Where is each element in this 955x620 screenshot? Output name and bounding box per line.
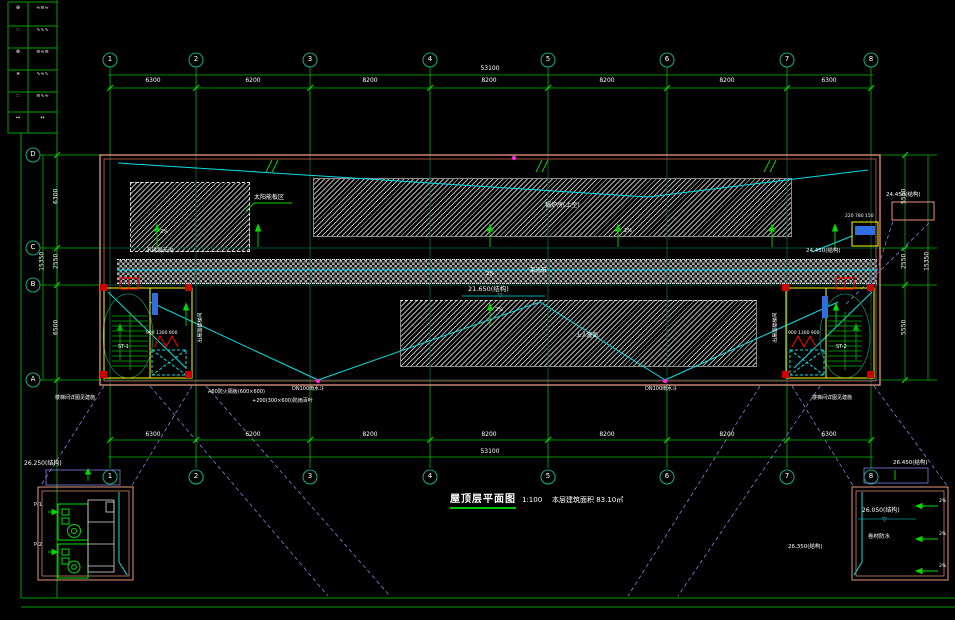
dim-top-total: 53100 xyxy=(470,66,510,73)
dim-top-2: 6200 xyxy=(233,78,273,85)
cad-roof-plan-sheet: ⊕ ≈≋≈ ∷ ∿∿∿ ⊗ ≋≈≋ ∗ ∿≈∿ ∷ ≋∿≈ ↔ ↔ 1 2 3 … xyxy=(0,0,955,620)
slope-label: 2% xyxy=(939,565,946,570)
cad-linework xyxy=(0,0,955,620)
drawing-scale: 1:100 xyxy=(522,497,542,505)
dim-top-6: 8200 xyxy=(707,78,747,85)
louver-note: A60防火隔板(600×600) xyxy=(208,390,265,396)
gutter-label: 不锈钢天沟 xyxy=(146,248,174,254)
stair-note-right: 出屋面楼梯间 xyxy=(773,313,779,343)
dim-bot-7: 6300 xyxy=(809,432,849,439)
drainage-lines xyxy=(108,163,916,575)
titleblock-cell: ↔ xyxy=(29,116,56,122)
dim-bot-6: 8200 xyxy=(707,432,747,439)
dim-ticks xyxy=(54,85,908,443)
dim-bot-1: 6300 xyxy=(133,432,173,439)
stair-detail-note-left: 楼梯间详图见建施 xyxy=(55,396,95,402)
dim-left-1: 6300 xyxy=(54,181,61,211)
dim-right-total: 15350 xyxy=(925,246,932,276)
titleblock-cell: ≈≋≈ xyxy=(29,6,56,12)
duct-shaft xyxy=(88,500,114,572)
dim-right-2: 2550 xyxy=(902,246,909,276)
grid-bubble-7: 7 xyxy=(780,56,794,64)
titleblock-cell: ⊗ xyxy=(9,50,27,56)
grid-bubble-2b: 2 xyxy=(189,473,203,481)
skylight-band-label: 采光带 xyxy=(530,268,547,274)
detail-header-boxes xyxy=(46,468,928,485)
solar-area-label: 太阳能板区 xyxy=(254,195,284,202)
grid-bubble-1b: 1 xyxy=(103,473,117,481)
slope-label: 2% xyxy=(160,230,168,236)
plan-borders xyxy=(38,155,948,580)
titleblock-cell: ∿∿∿ xyxy=(29,28,56,34)
window-right-core xyxy=(822,296,828,318)
stair2-label: ST-2 xyxy=(836,345,847,351)
level-tr-label: 24.450(结构) xyxy=(886,192,921,198)
slope-arrows xyxy=(48,160,938,574)
area-note: 本层建筑面积 83.10㎡ xyxy=(552,497,623,505)
slope-label: 2% xyxy=(495,308,503,314)
dim-right-3: 5550 xyxy=(902,312,909,342)
level-triangle-icon: ▽ xyxy=(882,517,887,524)
stair-detail-note-right: 楼梯间详图见建施 xyxy=(812,396,852,402)
titleblock-cell: ∿≈∿ xyxy=(29,72,56,78)
stair-core-walls xyxy=(104,222,878,378)
titleblock-cell: ∷ xyxy=(9,94,27,100)
grid-bubble-6: 6 xyxy=(660,56,674,64)
corner-posts xyxy=(100,284,874,378)
slope-label: 2% xyxy=(939,533,946,538)
grid-bubble-3: 3 xyxy=(303,56,317,64)
dim-bot-5: 8200 xyxy=(587,432,627,439)
fan1-label: P-1 xyxy=(34,503,42,509)
dim-left-3: 6500 xyxy=(54,312,61,342)
stair-note-left: 出屋面楼梯间 xyxy=(198,313,204,343)
dim-top-7: 6300 xyxy=(809,78,849,85)
drain-note-right: DN100雨水斗 xyxy=(645,387,677,393)
stair1-label: ST-1 xyxy=(118,345,129,351)
right-detail-level-top: 26.450(结构) xyxy=(893,460,928,466)
grid-bubble-5b: 5 xyxy=(541,473,555,481)
drain-note-left: DN100雨水斗 xyxy=(292,387,324,393)
titleblock-cell: ∷ xyxy=(9,28,27,34)
grid-bubble-8b: 8 xyxy=(864,473,878,481)
dim-top-1: 6300 xyxy=(133,78,173,85)
title-underline xyxy=(450,507,516,509)
grid-bubble-D: D xyxy=(26,151,40,159)
grid-bubble-3b: 3 xyxy=(303,473,317,481)
dim-bot-4: 8200 xyxy=(469,432,509,439)
dim-bot-3: 8200 xyxy=(350,432,390,439)
grid-bubble-2: 2 xyxy=(189,56,203,64)
left-detail-level: 26.250(结构) xyxy=(24,461,62,468)
right-detail-level-left: 26.350(结构) xyxy=(788,544,823,550)
stair-dims-left: 900 1300 900 xyxy=(146,332,178,337)
slope-label: 2% xyxy=(486,272,494,278)
right-detail-note: 卷材防水 xyxy=(868,534,890,540)
slope-label: 2% xyxy=(939,500,946,505)
dim-top-5: 8200 xyxy=(587,78,627,85)
stairs xyxy=(103,294,870,378)
drawing-title: 屋顶层平面图 xyxy=(450,494,516,505)
roof-walk-label: 上人屋面 xyxy=(576,333,598,339)
solar-tank-glass xyxy=(855,226,875,235)
fan-units xyxy=(58,504,88,578)
grid-bubble-8: 8 xyxy=(864,56,878,64)
grid-bubbles xyxy=(26,53,878,484)
grid-bubble-4b: 4 xyxy=(423,473,437,481)
slope-label: 2% xyxy=(624,229,632,235)
fan2-label: P-2 xyxy=(34,543,42,549)
dim-top-3: 8200 xyxy=(350,78,390,85)
grid-bubble-5: 5 xyxy=(541,56,555,64)
dim-top-4: 8200 xyxy=(469,78,509,85)
dim-left-2: 2550 xyxy=(54,246,61,276)
grid-bubble-4: 4 xyxy=(423,56,437,64)
titleblock-cell: ≋≈≋ xyxy=(29,50,56,56)
grid-lines-bright xyxy=(40,67,937,468)
level-triangle-icon: ▽ xyxy=(498,293,503,300)
dim-left-total: 15350 xyxy=(40,246,47,276)
grid-bubble-7b: 7 xyxy=(780,473,794,481)
level-right-label: 24.450(结构) xyxy=(806,248,841,254)
projection-lines xyxy=(40,221,948,596)
titleblock-cell: ⊕ xyxy=(9,6,27,12)
dim-bot-total: 53100 xyxy=(470,449,510,456)
window-left-core xyxy=(152,293,158,315)
grid-bubble-B: B xyxy=(26,281,40,289)
dim-bot-2: 6200 xyxy=(233,432,273,439)
vent-note: +200(300×600)防雨百叶 xyxy=(252,399,313,405)
grid-bubble-6b: 6 xyxy=(660,473,674,481)
titleblock-cell: ∗ xyxy=(9,72,27,78)
right-detail-level-mid: 26.050(结构) xyxy=(862,508,900,515)
titleblock-cell: ↔ xyxy=(9,116,27,122)
stair-dims-right: 900 1300 900 xyxy=(788,332,820,337)
boiler-room-label: 锅炉房(上空) xyxy=(545,203,580,210)
grid-bubble-1: 1 xyxy=(103,56,117,64)
solar-box-dims: 220 780 150 xyxy=(845,215,874,220)
grid-bubble-A: A xyxy=(26,376,40,384)
titleblock-cell: ≋∿≈ xyxy=(29,94,56,100)
